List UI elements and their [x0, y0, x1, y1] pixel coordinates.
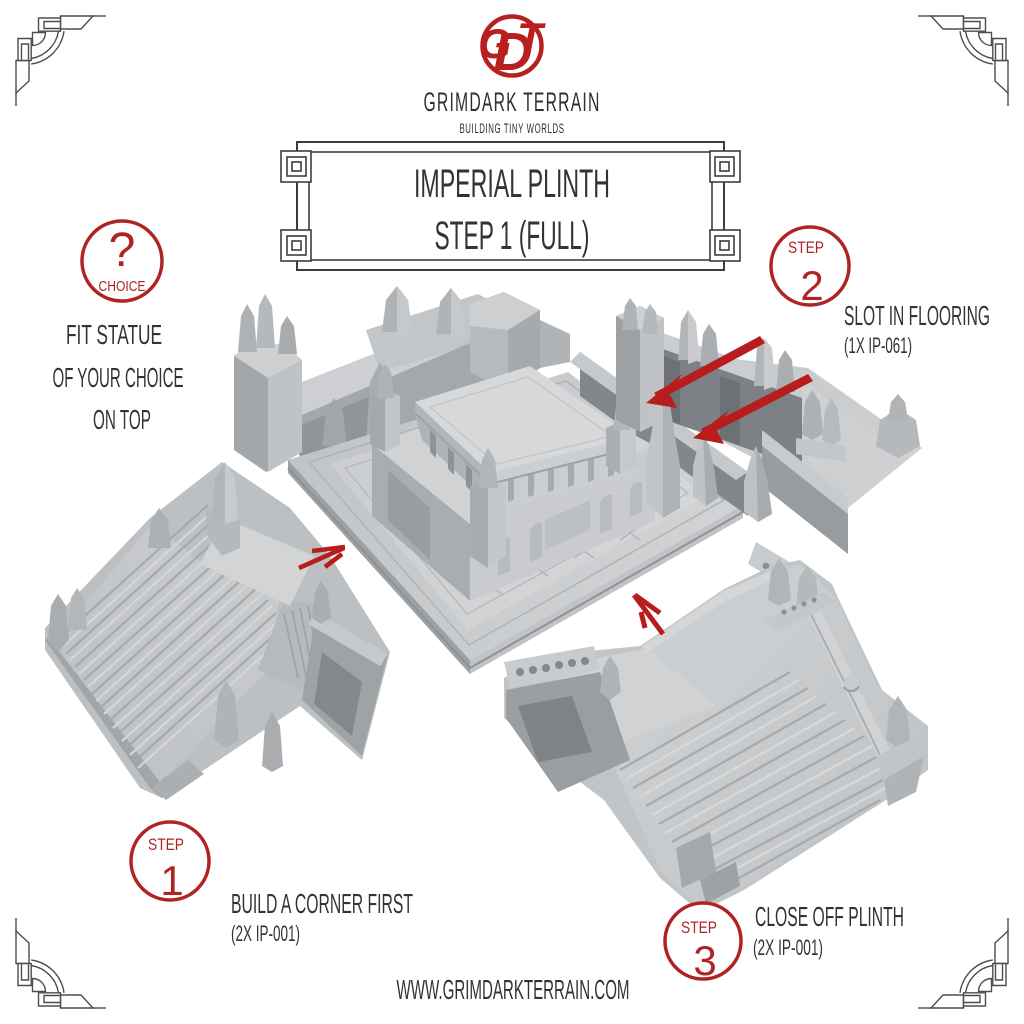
- svg-text:SLOT IN FLOORING: SLOT IN FLOORING: [844, 300, 990, 331]
- svg-text:BUILD A CORNER FIRST: BUILD A CORNER FIRST: [231, 888, 413, 919]
- svg-text:?: ?: [109, 224, 136, 277]
- svg-text:ON TOP: ON TOP: [93, 404, 151, 435]
- svg-text:IMPERIAL PLINTH: IMPERIAL PLINTH: [414, 162, 610, 206]
- svg-text:STEP 1 (FULL): STEP 1 (FULL): [435, 214, 590, 258]
- svg-text:(2X IP-001): (2X IP-001): [231, 921, 300, 946]
- svg-text:STEP: STEP: [788, 238, 824, 257]
- svg-text:GRIMDARK TERRAIN: GRIMDARK TERRAIN: [424, 87, 601, 117]
- svg-text:STEP: STEP: [148, 835, 184, 854]
- svg-text:2: 2: [800, 262, 823, 309]
- svg-text:1: 1: [160, 857, 183, 904]
- svg-text:(1X IP-061): (1X IP-061): [844, 333, 912, 358]
- svg-text:STEP: STEP: [681, 918, 717, 937]
- svg-text:BUILDING TINY WORLDS: BUILDING TINY WORLDS: [460, 121, 565, 136]
- svg-text:OF YOUR CHOICE: OF YOUR CHOICE: [53, 362, 184, 393]
- svg-text:CLOSE OFF PLINTH: CLOSE OFF PLINTH: [755, 901, 904, 932]
- svg-text:3: 3: [693, 937, 716, 984]
- svg-text:CHOICE: CHOICE: [99, 278, 146, 295]
- svg-text:WWW.GRIMDARKTERRAIN.COM: WWW.GRIMDARKTERRAIN.COM: [397, 974, 630, 1005]
- svg-text:FIT STATUE: FIT STATUE: [66, 319, 162, 350]
- svg-text:T: T: [517, 14, 546, 61]
- svg-text:(2X IP-001): (2X IP-001): [753, 935, 823, 960]
